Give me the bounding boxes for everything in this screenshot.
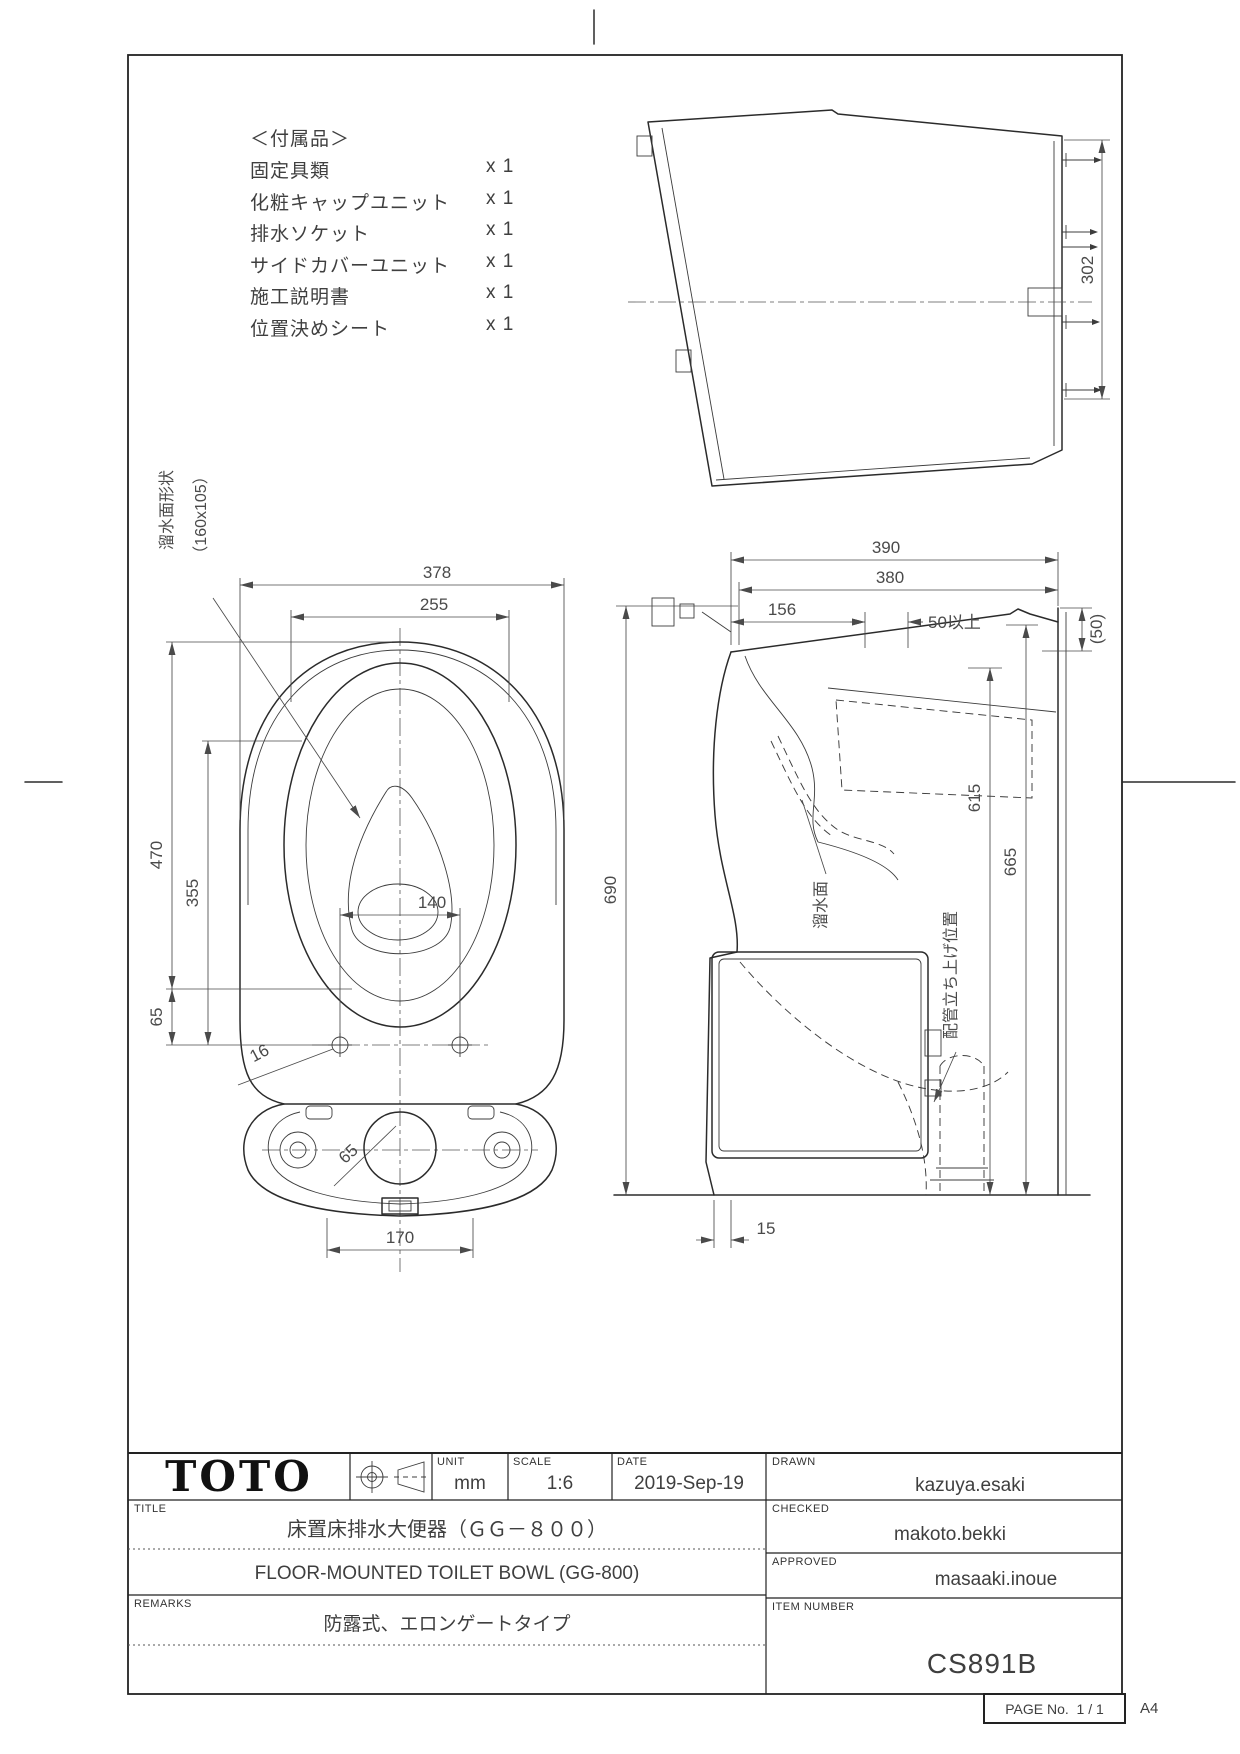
rear-outline [648, 110, 1062, 486]
plan-bowl-inner-offset [248, 650, 556, 905]
list-item: 化粧キャップユニットx 1 [250, 188, 550, 220]
accessory-qty: x 1 [486, 251, 514, 273]
approved-value: masaaki.inoue [896, 1568, 1096, 1592]
water-surface-label: 溜水面 [812, 881, 830, 929]
side-hidden-tank-box [836, 700, 1032, 798]
accessory-name: 排水ソケット [250, 224, 370, 245]
side-cover-panel-inner [719, 959, 921, 1151]
side-fixture-link [702, 612, 731, 632]
date-label: DATE [617, 1456, 648, 1468]
pipe-riser-label: 配管立ち上げ位置 [942, 911, 960, 1039]
water-surface-note: 溜水面形状 [158, 470, 176, 550]
dim-16: 16 [247, 1040, 273, 1066]
dim-390: 390 [872, 538, 900, 557]
page-value: 1 / 1 [1077, 1701, 1104, 1717]
drawn-label: DRAWN [772, 1456, 816, 1468]
side-cover-panel [712, 952, 928, 1158]
title-english: FLOOR-MOUNTED TOILET BOWL (GG-800) [128, 1556, 766, 1592]
page-label: PAGE No. [1005, 1701, 1069, 1717]
accessories-header: ＜付属品＞ [250, 124, 550, 156]
dim-690: 690 [601, 876, 620, 904]
drawn-value: kazuya.esaki [870, 1474, 1070, 1498]
accessory-qty: x 1 [486, 282, 514, 304]
side-water-line-hidden-2 [771, 741, 832, 836]
accessory-name: サイドカバーユニット [250, 256, 450, 277]
list-item: サイドカバーユニットx 1 [250, 251, 550, 283]
plan-view: 溜水面形状 （160x105） 378 255 470 65 355 140 [147, 468, 564, 1272]
water-surface-note-size: （160x105） [192, 468, 210, 561]
projection-symbol-icon [356, 1461, 428, 1493]
accessories-list: ＜付属品＞ 固定具類x 1 化粧キャップユニットx 1 排水ソケットx 1 サイ… [250, 124, 550, 345]
rear-inner-left-line [662, 128, 724, 479]
dim-355: 355 [183, 879, 202, 907]
accessory-qty: x 1 [486, 314, 514, 336]
side-bowl-curve-1 [745, 656, 818, 842]
rear-tab-top [637, 136, 652, 156]
side-trapway-hidden-1 [740, 962, 1008, 1091]
dim-615: 615 [965, 784, 984, 812]
dim-140: 140 [418, 893, 446, 912]
plan-base-clip-left [306, 1106, 332, 1119]
item-number-label: ITEM NUMBER [772, 1601, 855, 1613]
accessory-qty: x 1 [486, 219, 514, 241]
dim-255: 255 [420, 595, 448, 614]
list-item: 位置決めシートx 1 [250, 314, 550, 346]
side-water-line-hidden-1 [778, 736, 894, 854]
side-bowl-curve-2 [818, 842, 898, 880]
accessory-qty: x 1 [486, 188, 514, 210]
remarks-value: 防露式、エロンゲートタイプ [128, 1604, 766, 1640]
dim-65-left: 65 [147, 1008, 166, 1027]
list-item: 施工説明書x 1 [250, 282, 550, 314]
approved-label: APPROVED [772, 1556, 837, 1568]
side-front-profile [706, 652, 737, 1195]
accessory-name: 位置決めシート [250, 319, 390, 340]
list-item: 固定具類x 1 [250, 156, 550, 188]
toto-logo: TOTO [128, 1453, 350, 1500]
dim-380: 380 [876, 568, 904, 587]
dim-156: 156 [768, 600, 796, 619]
dim-665: 665 [1001, 848, 1020, 876]
dim-15: 15 [757, 1219, 776, 1238]
rear-view: 302 [628, 110, 1110, 486]
item-number-value: CS891B [880, 1644, 1084, 1684]
accessory-name: 固定具類 [250, 161, 330, 182]
title-japanese: 床置床排水大便器（ＧＧ－８００） [128, 1508, 766, 1546]
side-tank-shelf [828, 688, 1056, 712]
side-trapway-hidden-2 [898, 1082, 926, 1195]
paper-size-label: A4 [1140, 1700, 1158, 1717]
dim-50-min: 50以上 [928, 613, 981, 632]
date-value: 2019-Sep-19 [612, 1470, 766, 1498]
page-number-box: PAGE No. 1 / 1 [983, 1693, 1126, 1724]
checked-value: makoto.bekki [850, 1523, 1050, 1547]
scale-label: SCALE [513, 1456, 552, 1468]
dim-50-ref: (50) [1087, 614, 1106, 644]
drawing-sheet: 302 溜水面形状 （160x105） 378 255 470 65 [0, 0, 1240, 1754]
plan-base-clip-right [468, 1106, 494, 1119]
list-item: 排水ソケットx 1 [250, 219, 550, 251]
accessory-name: 施工説明書 [250, 287, 350, 308]
accessory-name: 化粧キャップユニット [250, 193, 450, 214]
dim-302: 302 [1078, 256, 1097, 284]
side-view: 溜水面 配管立ち上げ位置 390 380 156 50以上 (50) 615 6… [601, 538, 1106, 1248]
accessory-qty: x 1 [486, 156, 514, 178]
unit-value: mm [432, 1470, 508, 1498]
dim-170: 170 [386, 1228, 414, 1247]
unit-label: UNIT [437, 1456, 465, 1468]
checked-label: CHECKED [772, 1503, 829, 1515]
rear-inner-bottom-line [716, 458, 1030, 480]
dim-378: 378 [423, 563, 451, 582]
scale-value: 1:6 [508, 1470, 612, 1498]
dim-470: 470 [147, 841, 166, 869]
side-riser-hidden-top [940, 1056, 984, 1067]
side-fixture-bracket [652, 598, 674, 626]
